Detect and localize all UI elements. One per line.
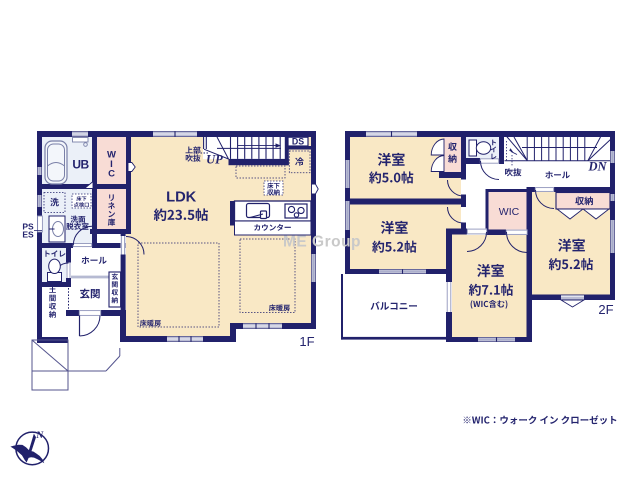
svg-text:UB: UB	[72, 158, 89, 172]
svg-text:DS: DS	[292, 136, 304, 146]
svg-text:2F: 2F	[598, 302, 613, 317]
svg-text:1F: 1F	[299, 334, 314, 349]
svg-text:ES: ES	[22, 230, 34, 240]
svg-text:UP: UP	[206, 153, 223, 167]
svg-text:N: N	[35, 431, 44, 441]
svg-text:C: C	[108, 169, 115, 180]
svg-text:DN: DN	[587, 160, 607, 174]
svg-text:WIC: WIC	[499, 206, 520, 218]
svg-text:ME Group: ME Group	[283, 234, 361, 251]
svg-text:LDK: LDK	[166, 190, 197, 206]
